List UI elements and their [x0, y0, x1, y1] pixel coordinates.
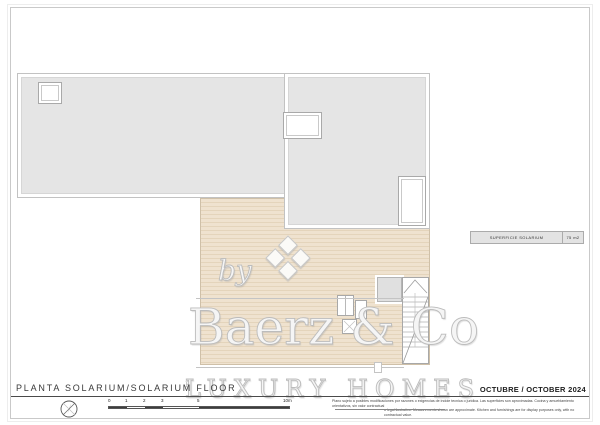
scale-segment — [127, 407, 145, 408]
table-cross — [343, 320, 356, 333]
drawing-date: OCTUBRE / OCTOBER 2024 — [480, 385, 586, 394]
scale-segment — [163, 407, 199, 408]
area-legend-label: SUPERFICIE SOLARIUM — [470, 231, 563, 244]
skylight-opening — [286, 115, 319, 136]
scale-tick: 1 — [125, 398, 128, 403]
scale-tick: 10m — [283, 398, 292, 403]
outdoor-kitchen-unit — [355, 300, 367, 319]
skylight-opening — [401, 179, 423, 223]
skylight-opening — [41, 85, 59, 101]
title-block-rule — [11, 396, 589, 397]
area-legend: SUPERFICIE SOLARIUM 75 m2 — [470, 231, 584, 244]
skylight — [283, 112, 322, 139]
scale-bar: 0 1 2 3 5 10m — [108, 398, 298, 412]
staircase — [402, 277, 429, 364]
scale-tick: 5 — [197, 398, 200, 403]
scale-segment — [145, 407, 163, 408]
page-title: PLANTA SOLARIUM/SOLARIUM FLOOR — [16, 383, 236, 393]
staircase-drawing — [402, 277, 429, 364]
watermark-rule-bottom — [196, 367, 404, 368]
skylight — [398, 176, 426, 226]
scale-tick: 3 — [161, 398, 164, 403]
compass-icon — [58, 399, 80, 424]
outdoor-table — [342, 319, 357, 334]
scale-tick: 0 — [108, 398, 111, 403]
watermark-rule-top — [196, 298, 404, 299]
area-legend-value: 75 m2 — [563, 231, 584, 244]
watermark-ornament — [374, 362, 382, 373]
disclaimer-underline — [335, 409, 445, 410]
disclaimer-line-1: Plano sujeto a posibles modificaciones p… — [332, 399, 586, 408]
scale-bar-segments — [108, 406, 290, 409]
scale-segment — [199, 407, 289, 408]
scale-segment — [109, 407, 127, 408]
scale-tick: 2 — [143, 398, 146, 403]
drawing-sheet: SUPERFICIE SOLARIUM 75 m2 by Baerz & Co … — [0, 0, 600, 425]
skylight — [38, 82, 62, 104]
